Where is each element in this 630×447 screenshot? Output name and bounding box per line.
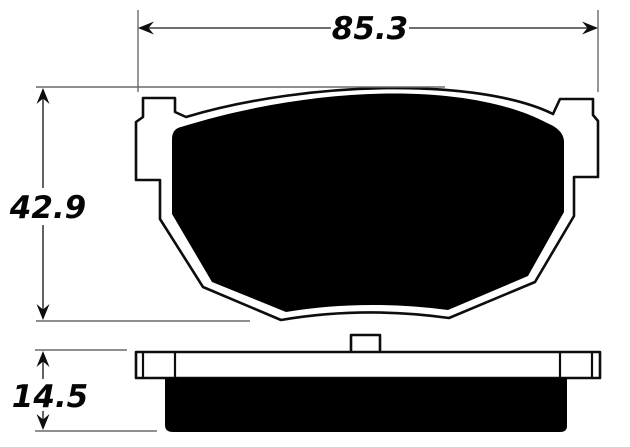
pad-front-view (136, 88, 598, 320)
width-dimension: 85.3 (138, 10, 598, 92)
side-view-locating-nib (351, 335, 380, 353)
drawing-canvas: 85.3 42.9 14.5 (0, 0, 630, 447)
height-dimension-label: 42.9 (9, 190, 87, 226)
thickness-dimension-label: 14.5 (12, 379, 89, 415)
side-view-friction-material (165, 378, 567, 432)
pad-side-view (136, 335, 600, 432)
side-view-backing-plate (136, 352, 600, 378)
brake-pad-technical-drawing: 85.3 42.9 14.5 (0, 0, 630, 447)
friction-material (172, 93, 564, 312)
width-dimension-label: 85.3 (332, 11, 409, 47)
